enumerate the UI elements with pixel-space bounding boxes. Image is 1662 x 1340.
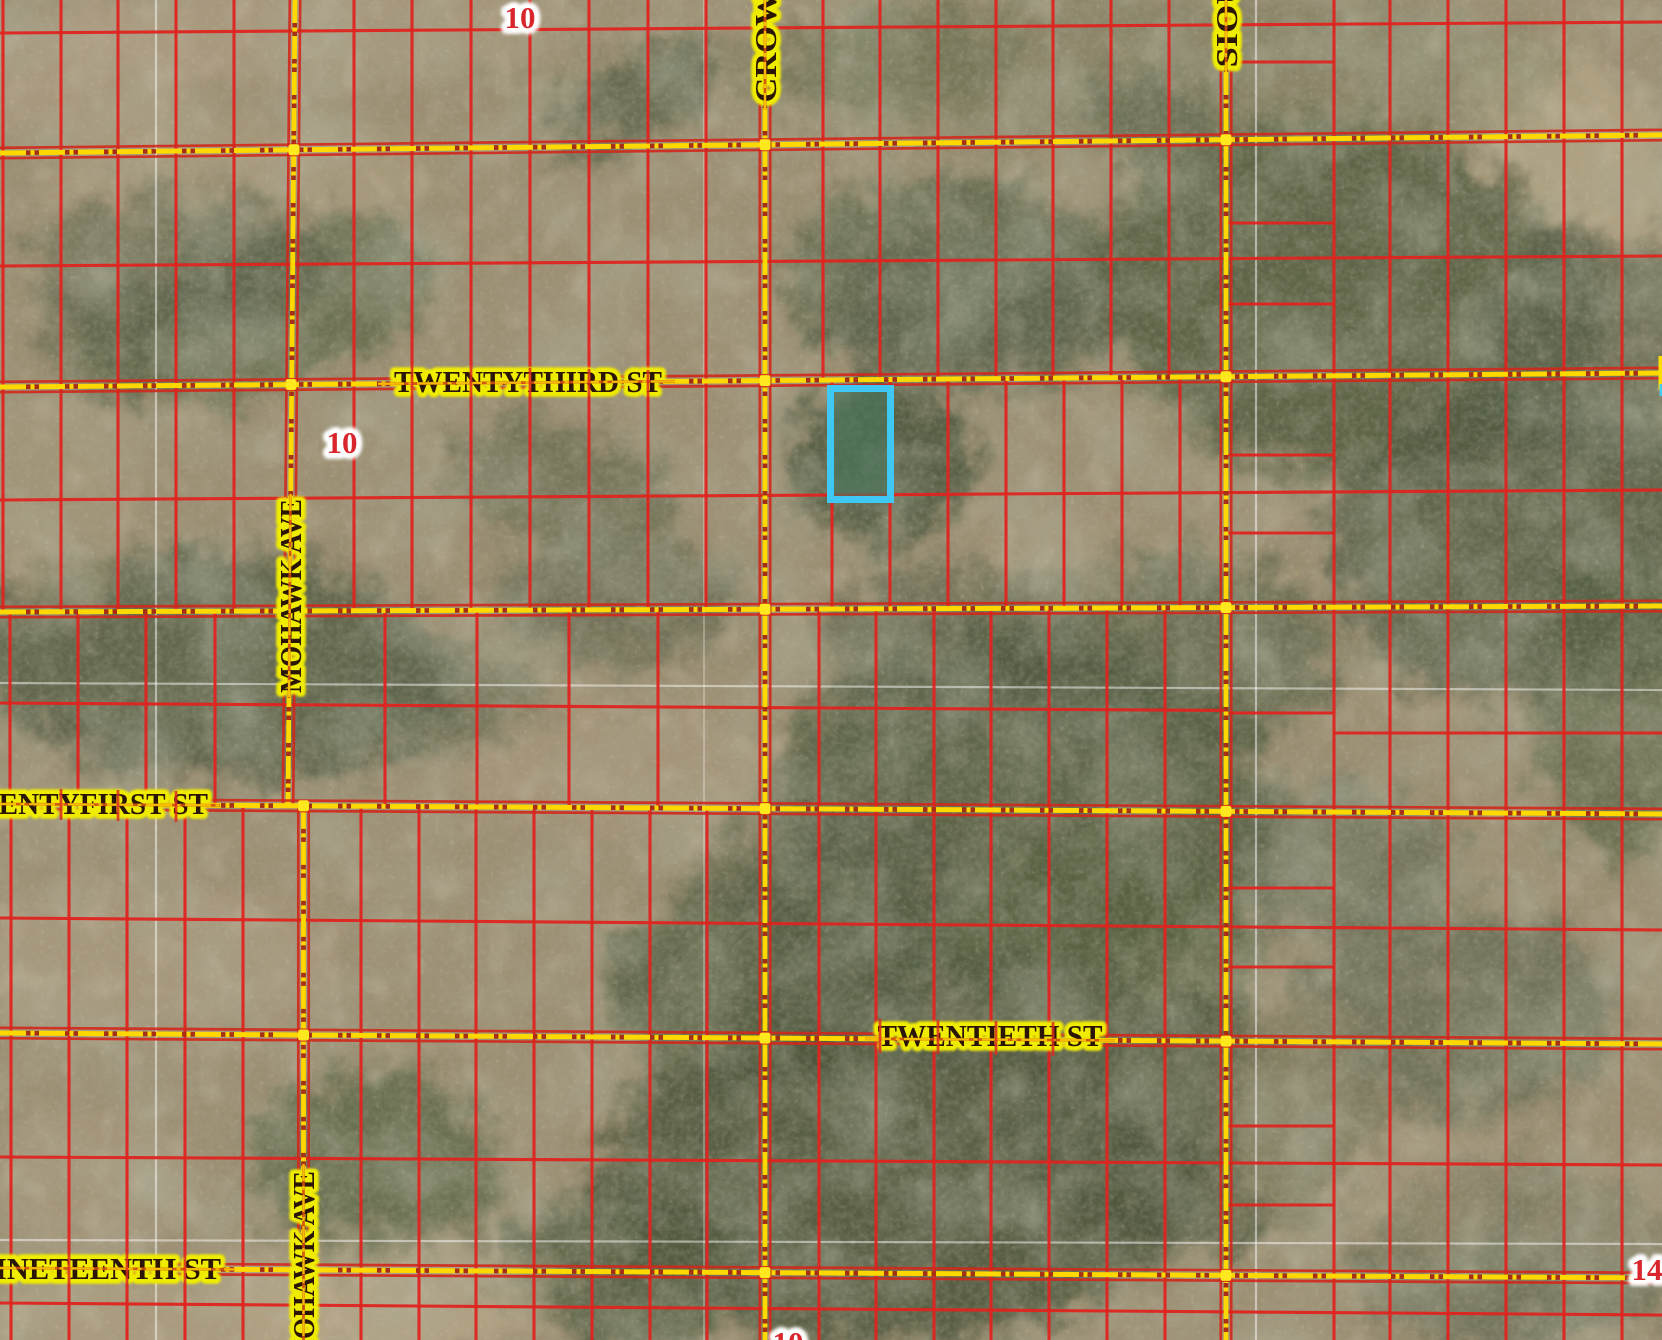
svg-text:14: 14 [1632, 1252, 1662, 1287]
svg-text:10: 10 [505, 0, 536, 35]
svg-text:10: 10 [773, 1325, 804, 1340]
svg-text:10: 10 [327, 425, 358, 460]
svg-text:TWENTIETH ST: TWENTIETH ST [878, 1018, 1103, 1053]
